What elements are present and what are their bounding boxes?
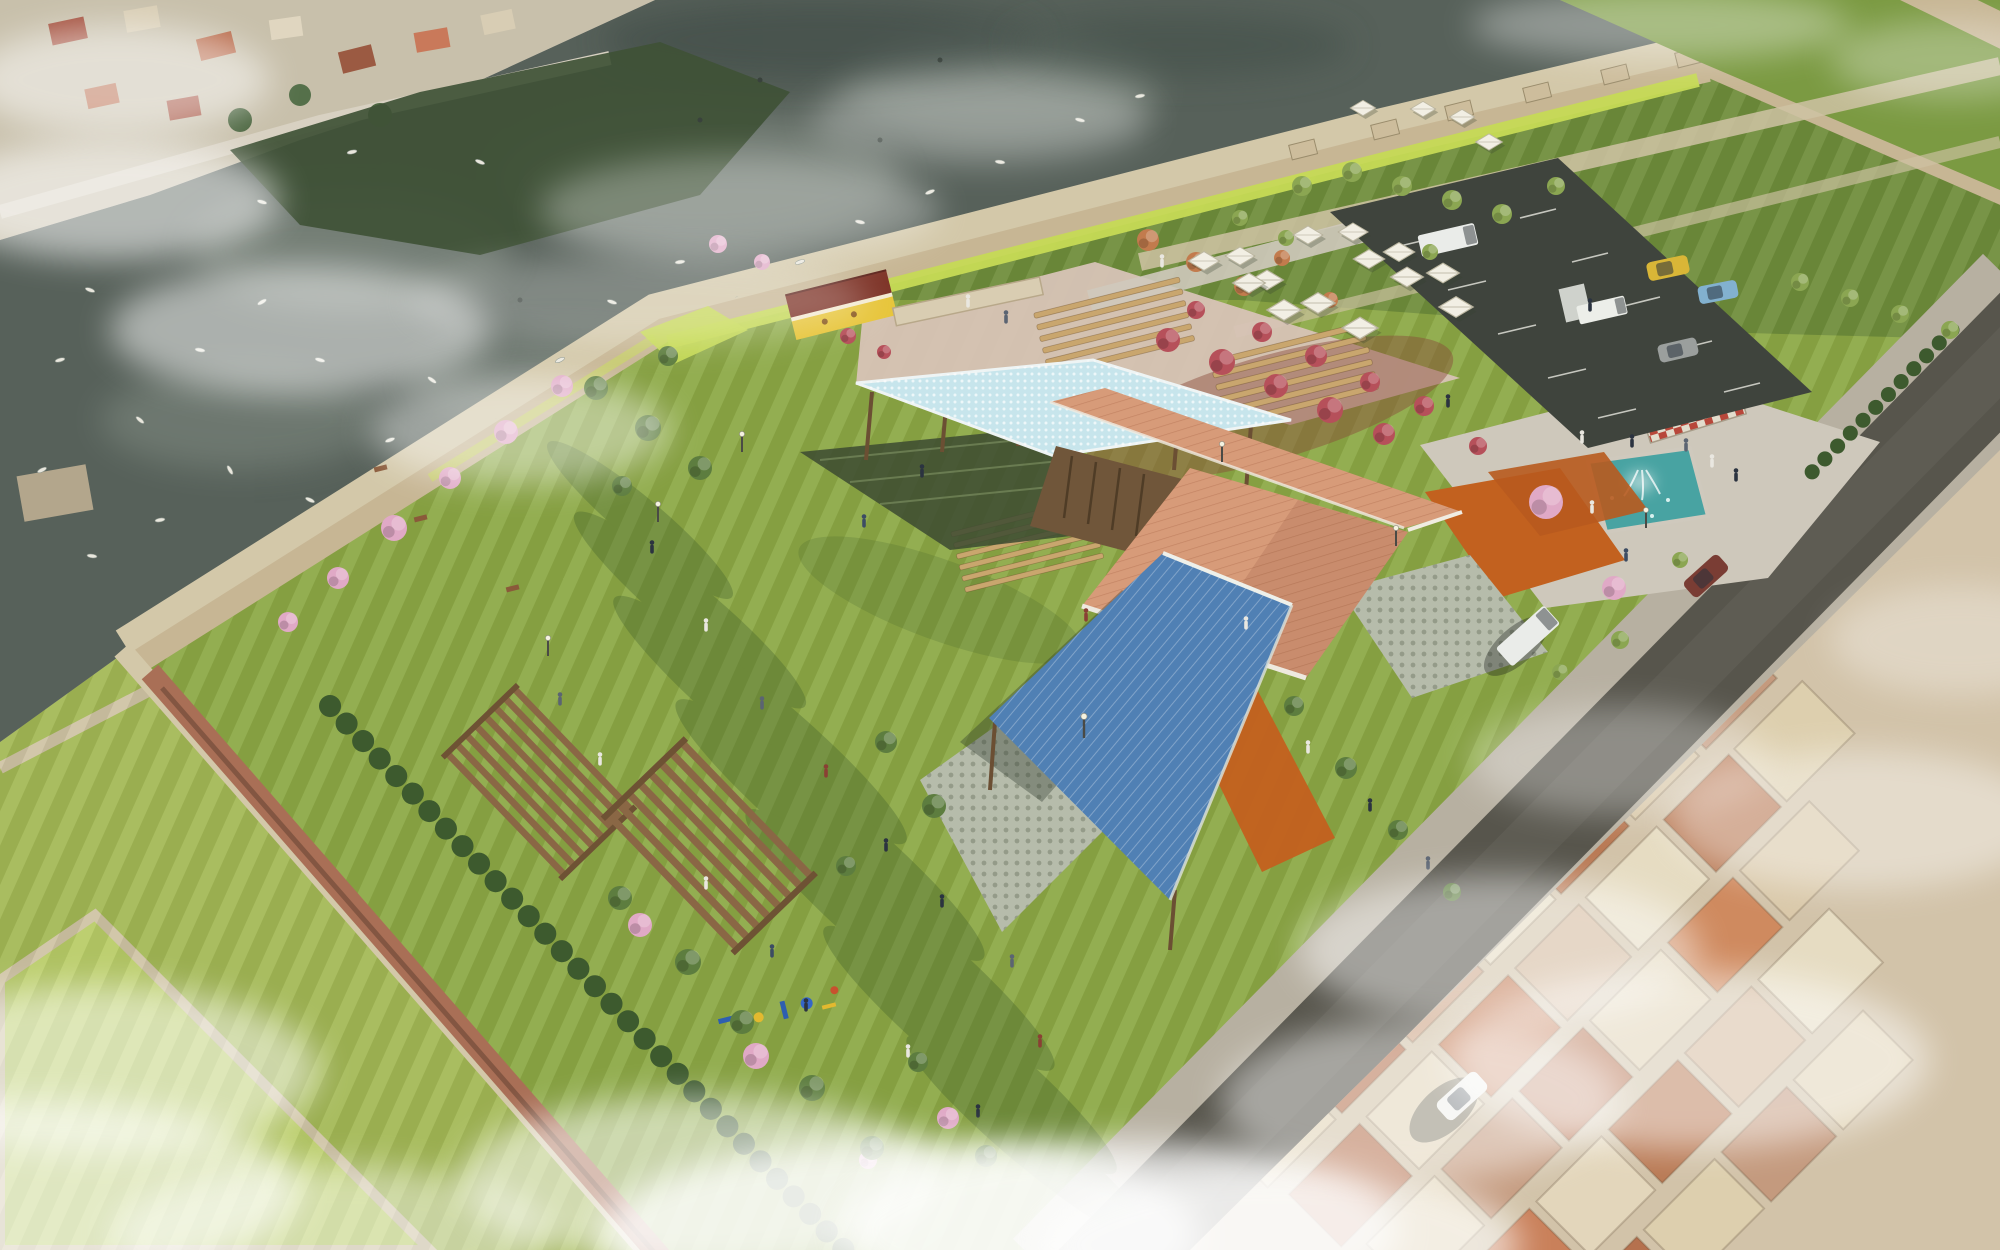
scene-canvas xyxy=(0,0,2000,1250)
aerial-render xyxy=(0,0,2000,1250)
